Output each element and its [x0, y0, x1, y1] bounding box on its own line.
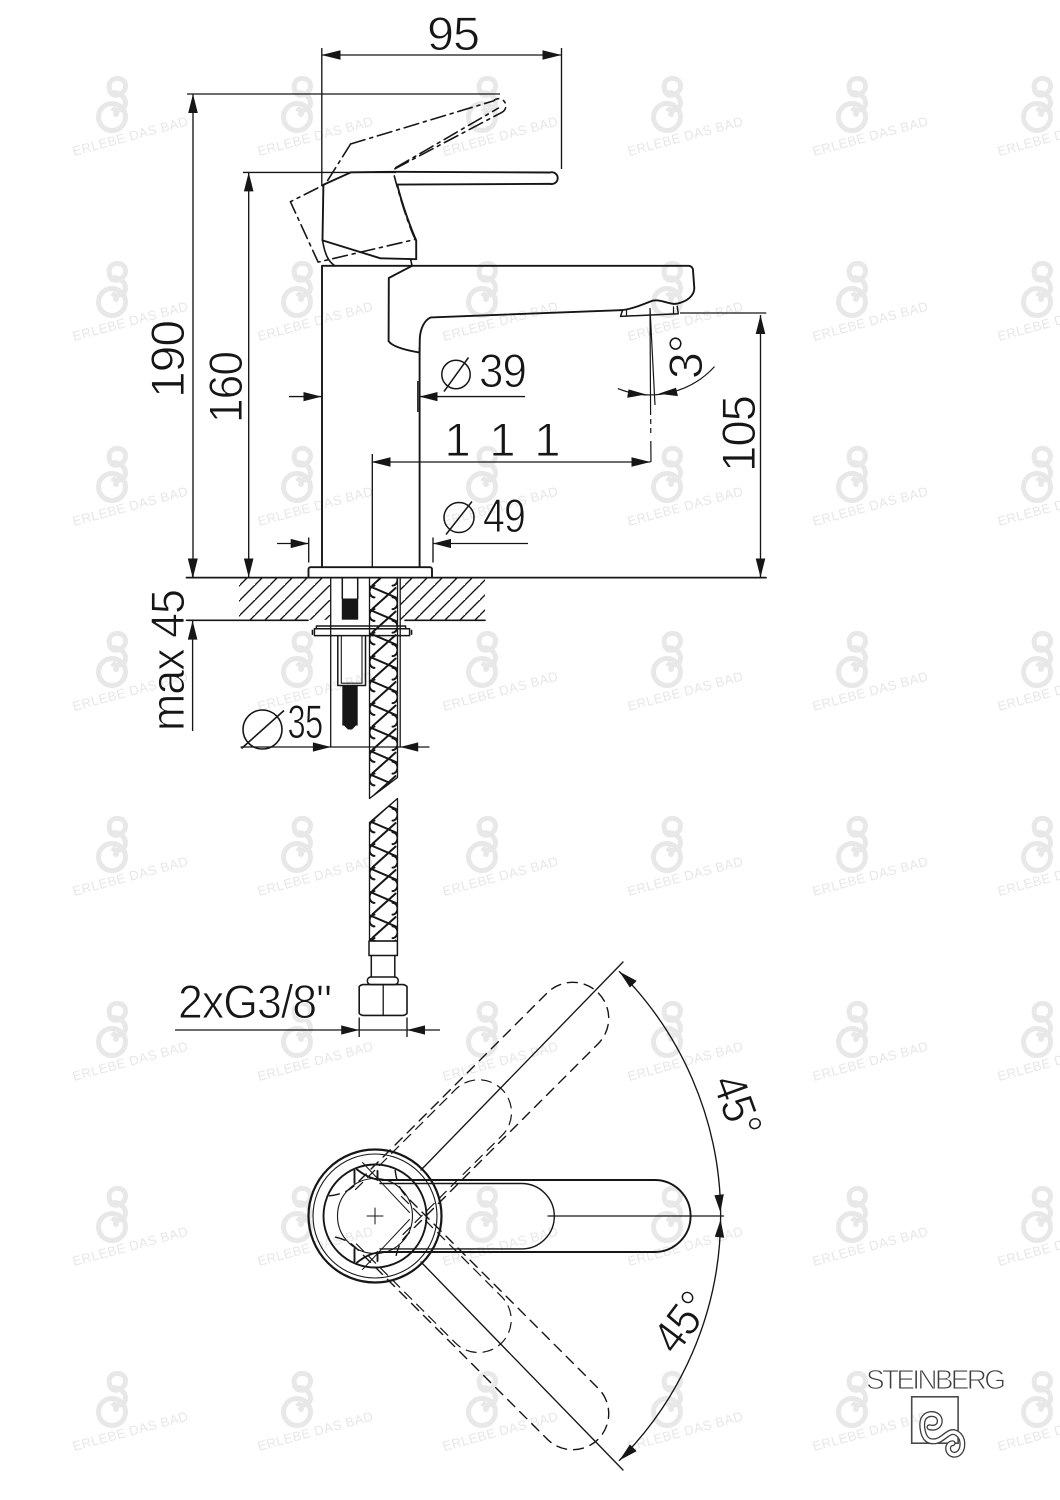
svg-text:95: 95 — [427, 7, 479, 60]
svg-text:35: 35 — [288, 695, 323, 748]
svg-text:49: 49 — [483, 489, 525, 542]
svg-text:3°: 3° — [659, 335, 712, 379]
svg-text:105: 105 — [712, 396, 765, 472]
svg-text:max 45: max 45 — [141, 590, 194, 731]
svg-text:39: 39 — [479, 344, 526, 397]
svg-text:160: 160 — [199, 352, 252, 423]
svg-text:2xG3/8": 2xG3/8" — [178, 975, 331, 1028]
svg-text:111: 111 — [445, 413, 560, 466]
svg-text:STEINBERG: STEINBERG — [866, 1364, 1006, 1395]
svg-text:190: 190 — [141, 321, 194, 398]
